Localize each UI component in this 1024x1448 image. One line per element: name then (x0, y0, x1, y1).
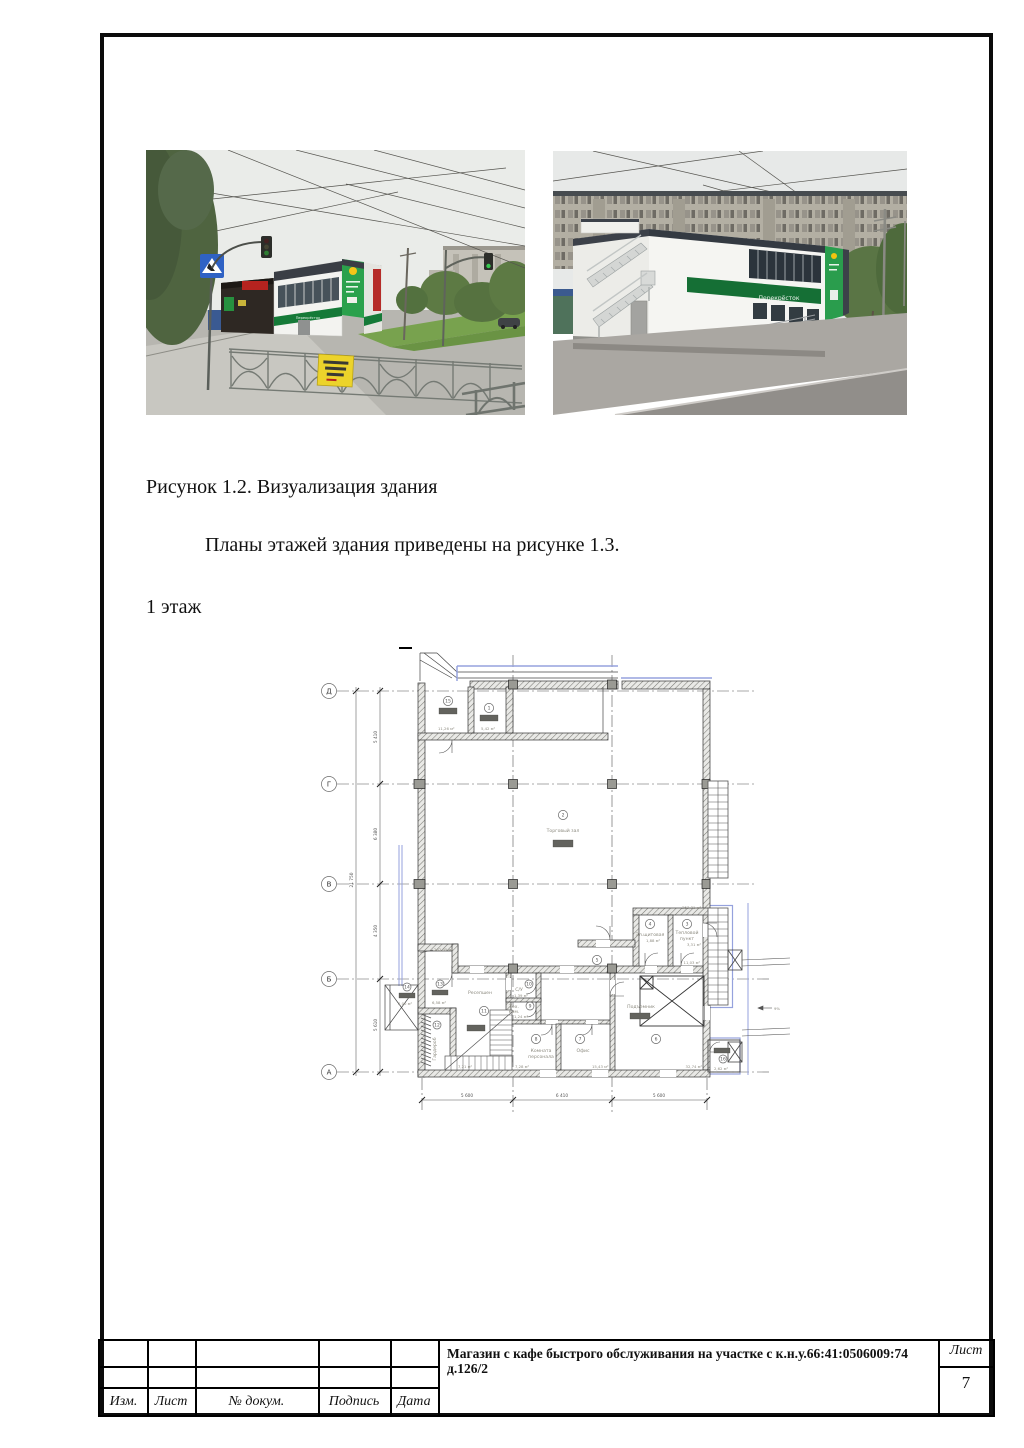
floor-plan: Д Г В Б А 5 410 6 380 4 350 5 610 21 750 (315, 640, 795, 1125)
dim-left: 5 410 (373, 731, 379, 744)
slope-annotation: 9% (774, 1006, 780, 1011)
room-num: 10 (526, 982, 532, 988)
dim-bottom: 5 600 (653, 1093, 666, 1099)
room-num: 9 (529, 1004, 532, 1010)
room-area: 7,21 м² (458, 1064, 473, 1069)
room-name: Гардероб (432, 1037, 438, 1060)
tb-col-data: Дата (390, 1389, 438, 1417)
tb-col-dokum: № докум. (195, 1389, 318, 1417)
store-sign-text: Перекрёсток (296, 316, 321, 320)
room-num: 16 (720, 1057, 726, 1063)
room-num: 1 (488, 706, 491, 712)
dim-left: 5 610 (373, 1019, 379, 1032)
room-area: 1,88 м² (646, 938, 661, 943)
room-area: 7,28 м² (515, 1064, 530, 1069)
floor-label: 1 этаж (146, 596, 201, 619)
canopy (399, 648, 618, 681)
axis-label: Д (326, 688, 332, 696)
dim-total: 21 750 (349, 872, 355, 887)
project-title: Магазин с кафе быстрого обслуживания на … (447, 1346, 931, 1376)
room-area: 32,74 м² (686, 1064, 703, 1069)
room-num: 13 (437, 982, 443, 988)
tb-line (100, 1366, 438, 1368)
room-num: 14 (404, 985, 410, 991)
tb-col-izm: Изм. (100, 1389, 147, 1417)
axis-label: Г (327, 781, 331, 789)
room-name: Комната (531, 1048, 552, 1054)
walls (418, 681, 710, 1077)
document-page: Перекрёсток (0, 0, 1024, 1448)
room-area: 11,26 м² (438, 726, 455, 731)
room-area: 5,42 м² (481, 726, 496, 731)
room-num: 15 (445, 699, 451, 705)
room-name: Торговый зал (546, 827, 580, 834)
room-name: персонала (528, 1055, 554, 1060)
figure-caption: Рисунок 1.2. Визуализация здания (146, 476, 437, 499)
title-block: Изм. Лист № докум. Подпись Дата Магазин … (98, 1339, 995, 1417)
photo-street-view: Перекрёсток (146, 150, 525, 415)
room-area: 3,31 м² (687, 942, 702, 947)
axis-bubbles: Д Г В Б А (322, 684, 337, 1080)
dim-bottom: 5 600 (461, 1093, 474, 1099)
sheet-label: Лист (939, 1343, 993, 1359)
dim-bottom: 6 410 (556, 1093, 569, 1099)
room-area: 2,00 м² (398, 1001, 413, 1006)
room-num: 2 (562, 813, 565, 819)
room-name: Ресепшен (468, 990, 492, 996)
stair-right-upper (708, 781, 728, 878)
photo-building-render: Перекрёсток (553, 151, 907, 415)
room-area: 1,24 м² (514, 1014, 529, 1019)
yellow-notice-sign (317, 354, 354, 387)
room-area: 6,58 м² (432, 1000, 447, 1005)
zone-area-annotation: 262,35 м² (434, 947, 453, 952)
room-num: 7 (579, 1037, 582, 1043)
room-area: 253,31 м² (682, 905, 701, 910)
ramp-lines (742, 958, 790, 1036)
axis-label: Б (327, 976, 332, 984)
columns (414, 680, 710, 973)
tb-col-list: Лист (147, 1389, 195, 1417)
room-name: Офис (576, 1048, 590, 1054)
tb-col-podpis: Подпись (318, 1389, 390, 1417)
stair-right-lower (708, 908, 728, 1005)
room-area: 1,39 м² (514, 993, 529, 998)
tb-line (438, 1341, 440, 1415)
room-num: 5 (596, 958, 599, 964)
room-name: Тепловой (675, 929, 699, 936)
room-area: 2,62 м² (714, 1066, 729, 1071)
room-num: 6 (655, 1037, 658, 1043)
photo-left-svg: Перекрёсток (146, 150, 525, 415)
body-paragraph: Планы этажей здания приведены на рисунке… (205, 534, 619, 557)
photo-right-svg: Перекрёсток (553, 151, 907, 415)
store-building: Перекрёсток (274, 259, 382, 336)
room-num: 8 (535, 1037, 538, 1043)
room-area: 15,43 м² (592, 1064, 609, 1069)
room-num: 11 (481, 1009, 487, 1015)
porch-left (385, 985, 418, 1030)
room-area: 11,03 м² (684, 960, 701, 965)
dim-left: 6 380 (373, 828, 379, 841)
axis-label: В (327, 881, 332, 889)
elevation-badges (399, 708, 730, 1053)
axis-label: А (327, 1069, 332, 1077)
room-name: Подъемник (627, 1004, 655, 1010)
room-num: 12 (434, 1023, 440, 1029)
tb-line (938, 1366, 993, 1368)
room-num: 4 (649, 922, 652, 928)
banner-text: Перекрёсток (759, 295, 800, 302)
sheet-number: 7 (939, 1373, 993, 1393)
room-num: 3 (686, 922, 689, 928)
dim-left: 4 350 (373, 925, 379, 938)
